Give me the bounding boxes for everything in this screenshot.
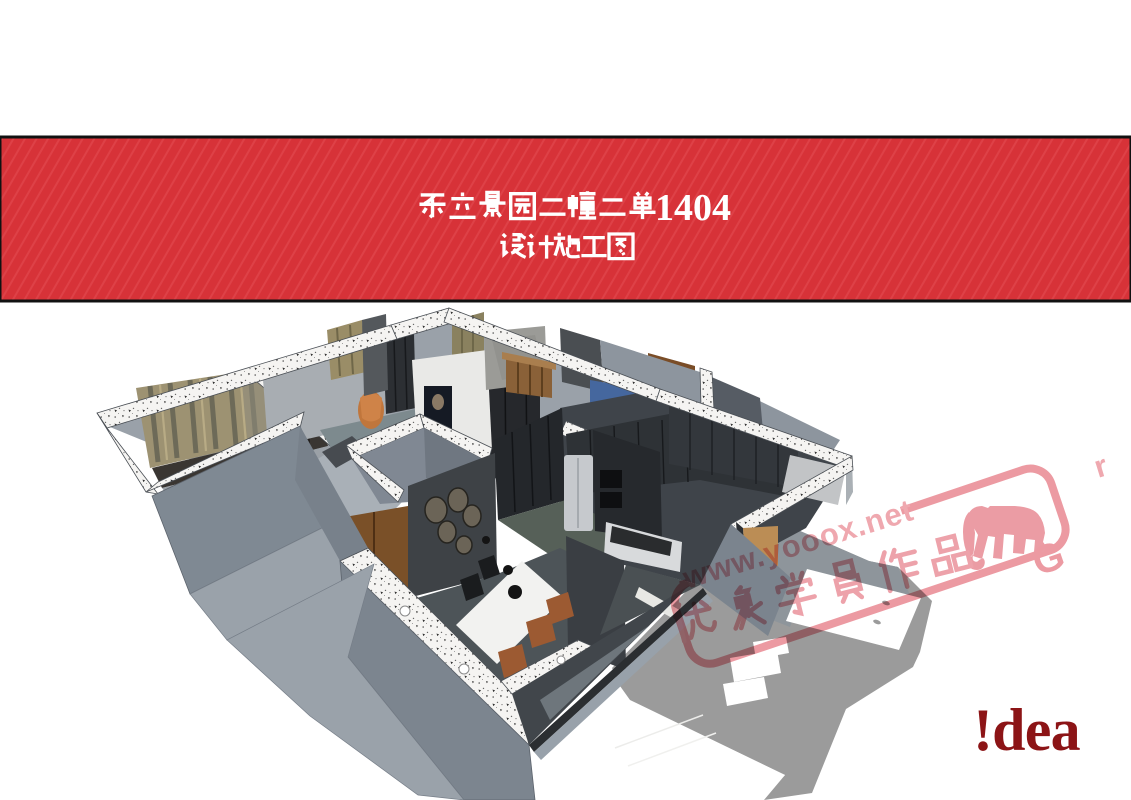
svg-text:!dea: !dea: [973, 697, 1081, 763]
svg-text:1404: 1404: [655, 187, 731, 229]
